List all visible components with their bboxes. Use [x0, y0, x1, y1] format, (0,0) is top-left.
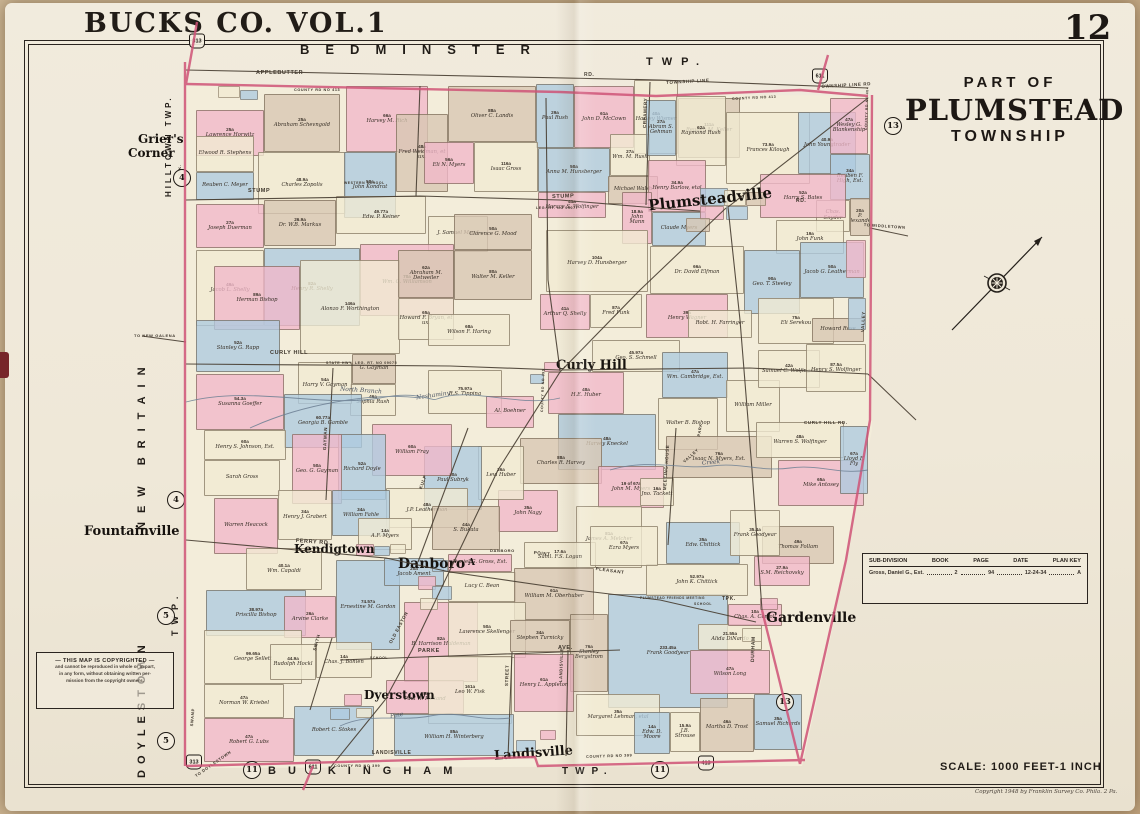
copyright-line2: in any form, without obtaining written p… — [37, 671, 173, 678]
subdivision-table: SUB-DIVISION BOOK PAGE DATE PLAN KEY Gro… — [862, 553, 1088, 604]
col-page: PAGE — [973, 558, 988, 564]
copyright-line1: and cannot be reproduced in whole or in … — [37, 664, 173, 671]
publisher-imprint: Copyright 1948 by Franklin Survey Co. Ph… — [975, 789, 1117, 795]
leader-dots — [961, 570, 986, 575]
subdivision-header-row: SUB-DIVISION BOOK PAGE DATE PLAN KEY — [869, 558, 1081, 567]
subdivision-name: Gross, Daniel G., Est. — [869, 570, 924, 576]
photographed-atlas-page: BUCKS CO. VOL.1 12 BEDMINSTER TWP. BUCKI… — [0, 0, 1140, 814]
subdivision-row: Gross, Daniel G., Est. 2 94 12-24-34 A — [869, 570, 1081, 576]
col-subdivision: SUB-DIVISION — [869, 558, 907, 564]
col-date: DATE — [1013, 558, 1028, 564]
col-plan-key: PLAN KEY — [1053, 558, 1081, 564]
paper-fold-crease — [556, 0, 596, 814]
leader-dots — [927, 570, 952, 575]
leader-dots — [997, 570, 1022, 575]
scale-text: SCALE: 1000 FEET-1 INCH — [940, 761, 1102, 773]
subdivision-book: 2 — [955, 570, 958, 576]
compass-rose — [952, 237, 1042, 330]
leader-dots — [1049, 570, 1074, 575]
copyright-line3: mission from the copyright owners. — [37, 678, 173, 685]
copyright-notice-box: — THIS MAP IS COPYRIGHTED — and cannot b… — [36, 652, 174, 709]
col-book: BOOK — [932, 558, 949, 564]
subdivision-key: A — [1077, 570, 1081, 576]
subdivision-date: 12-24-34 — [1025, 570, 1047, 576]
subdivision-page: 94 — [988, 570, 994, 576]
